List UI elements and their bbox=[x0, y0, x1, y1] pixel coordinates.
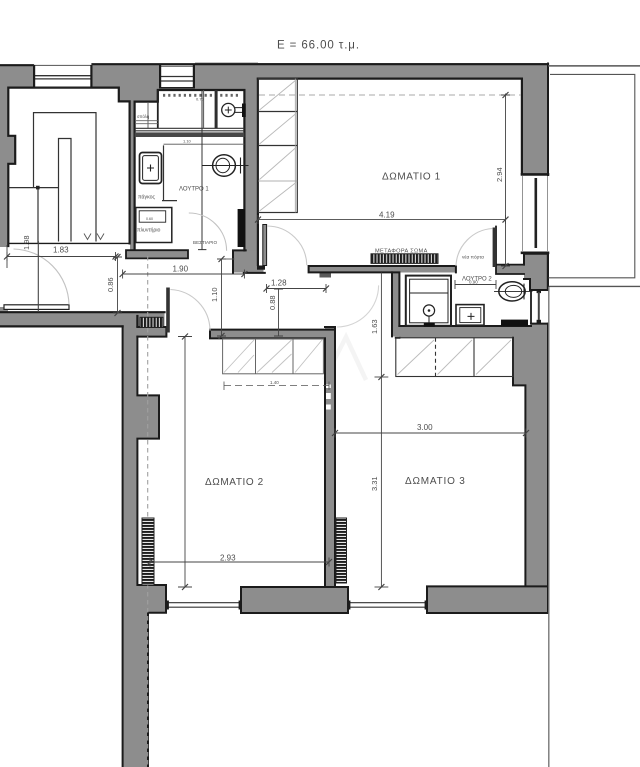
svg-text:1.63: 1.63 bbox=[370, 319, 379, 334]
svg-text:σπόλη: σπόλη bbox=[137, 114, 150, 119]
svg-text:ΛΟΥΤΡΟ 1: ΛΟΥΤΡΟ 1 bbox=[179, 187, 209, 193]
svg-text:E = 66.00 τ.μ.: E = 66.00 τ.μ. bbox=[277, 40, 360, 52]
svg-text:ΛΟΥΤΡΟ 2: ΛΟΥΤΡΟ 2 bbox=[462, 277, 492, 283]
svg-text:ΜΕΤΑΦΟΡΑ ΣΩΜΑ: ΜΕΤΑΦΟΡΑ ΣΩΜΑ bbox=[375, 248, 428, 254]
svg-text:4.19: 4.19 bbox=[379, 211, 395, 220]
svg-text:πάγκος: πάγκος bbox=[138, 194, 156, 201]
svg-text:ΔΩΜΑΤΙΟ 1: ΔΩΜΑΤΙΟ 1 bbox=[382, 172, 441, 183]
svg-text:νέα πόρτα: νέα πόρτα bbox=[462, 254, 484, 261]
svg-text:πλυντήριο: πλυντήριο bbox=[137, 227, 161, 234]
svg-text:3.31: 3.31 bbox=[370, 476, 379, 491]
svg-text:0.60: 0.60 bbox=[146, 217, 153, 221]
svg-text:1.40: 1.40 bbox=[270, 380, 279, 385]
svg-text:1.10: 1.10 bbox=[210, 287, 219, 302]
svg-text:0.86: 0.86 bbox=[106, 277, 115, 292]
svg-text:1.10: 1.10 bbox=[183, 139, 192, 144]
svg-text:2.94: 2.94 bbox=[495, 167, 504, 182]
svg-text:ΔΩΜΑΤΙΟ 2: ΔΩΜΑΤΙΟ 2 bbox=[205, 477, 264, 488]
svg-text:2.93: 2.93 bbox=[220, 554, 236, 563]
svg-text:1.98: 1.98 bbox=[22, 235, 31, 250]
svg-text:0.88: 0.88 bbox=[268, 295, 277, 310]
svg-text:3.00: 3.00 bbox=[417, 423, 433, 432]
svg-text:1.90: 1.90 bbox=[173, 265, 189, 274]
svg-text:0.70: 0.70 bbox=[196, 97, 205, 102]
svg-text:1.28: 1.28 bbox=[271, 279, 287, 288]
svg-text:ΒΕΣΤΙΑΡΙΟ: ΒΕΣΤΙΑΡΙΟ bbox=[193, 240, 217, 245]
svg-text:ΔΩΜΑΤΙΟ 3: ΔΩΜΑΤΙΟ 3 bbox=[405, 476, 466, 487]
svg-text:1.83: 1.83 bbox=[53, 246, 69, 255]
